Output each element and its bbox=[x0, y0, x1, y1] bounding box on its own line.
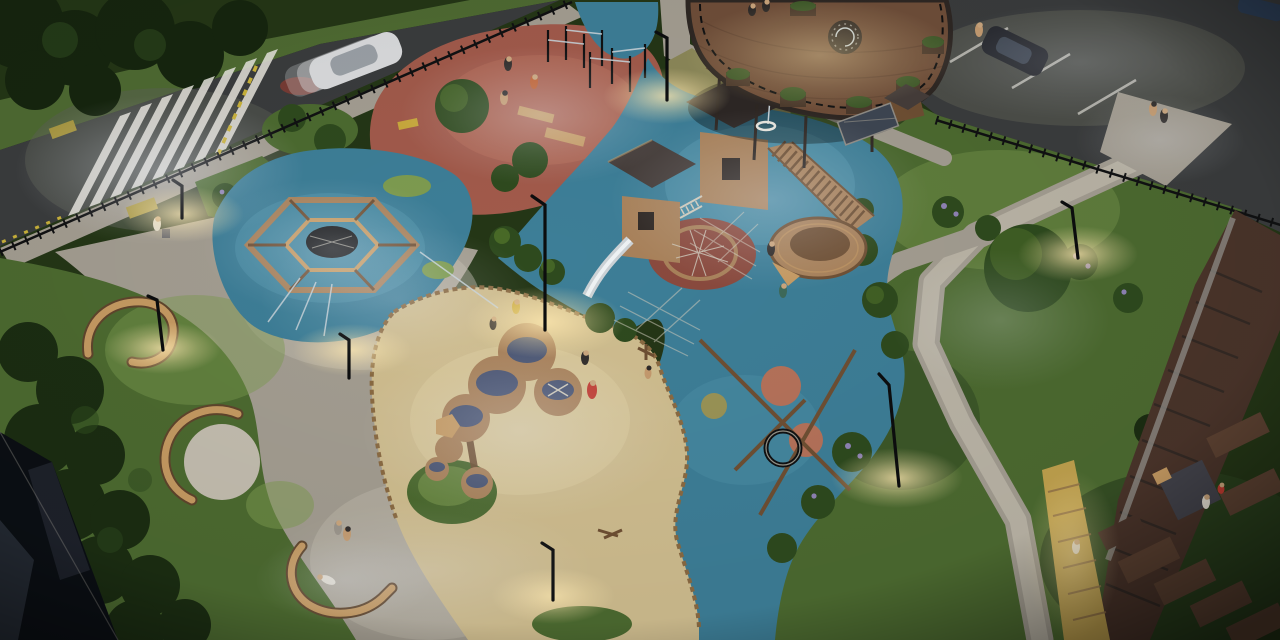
night-vignette bbox=[0, 0, 1280, 640]
scene-canvas: Night aerial 3D rendering of a residenti… bbox=[0, 0, 1280, 640]
playground-render: Night aerial 3D rendering of a residenti… bbox=[0, 0, 1280, 640]
